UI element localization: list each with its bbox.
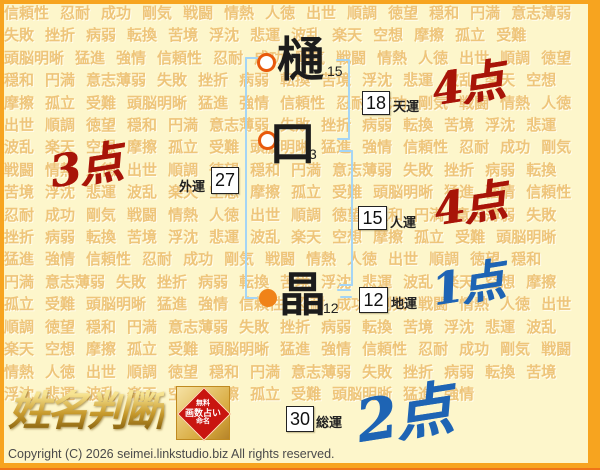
frame-border-bottom bbox=[0, 463, 600, 470]
person-score-stamp: 4点 bbox=[431, 179, 508, 234]
site-logo[interactable]: 姓名判断 bbox=[8, 390, 164, 432]
bracket-outer-cap-top bbox=[245, 57, 258, 59]
heaven-fortune-value: 18 bbox=[362, 91, 390, 115]
person-fortune-label: 人運 bbox=[390, 212, 416, 231]
name-char-2-strokes: 3 bbox=[309, 146, 317, 162]
total-fortune-label: 総運 bbox=[316, 412, 342, 431]
frame-border-right bbox=[588, 0, 600, 470]
bracket-outer-vertical bbox=[245, 57, 247, 299]
heaven-score-stamp: 4点 bbox=[429, 59, 506, 114]
seal-line-1: 無料 bbox=[196, 400, 210, 408]
bracket-heaven-vertical bbox=[348, 59, 350, 140]
earth-fortune-label: 地運 bbox=[391, 293, 417, 312]
total-fortune-value: 30 bbox=[286, 406, 314, 432]
seal-line-3: 命名 bbox=[196, 418, 210, 426]
total-score-stamp: 2点 bbox=[352, 379, 454, 451]
name-char-1: 樋 bbox=[277, 36, 324, 83]
bracket-heaven-cap-bottom bbox=[337, 138, 350, 140]
outer-fortune-label: 外運 bbox=[179, 176, 205, 195]
name-char-3-strokes: 12 bbox=[323, 300, 339, 316]
bracket-earth-dash-top bbox=[337, 289, 351, 291]
name-char-1-strokes: 15 bbox=[327, 63, 343, 79]
person-fortune-value: 15 bbox=[358, 206, 387, 230]
heaven-fortune-label: 天運 bbox=[393, 96, 419, 115]
bracket-heaven-cap-top bbox=[336, 59, 350, 61]
seal-line-2: 画数占い bbox=[185, 408, 221, 418]
outer-fortune-value: 27 bbox=[211, 167, 239, 194]
seimei-handan-result-page: 信頼性忍耐成功剛気戦闘情熱人徳出世順調徳望穏和円満意志薄弱失敗挫折病弱転換苦境浮… bbox=[0, 0, 600, 470]
earth-score-stamp: 1点 bbox=[429, 259, 506, 314]
name-char-3: 晶 bbox=[279, 271, 326, 318]
bracket-earth-dash-bottom bbox=[340, 296, 352, 298]
earth-fortune-value: 12 bbox=[359, 287, 388, 313]
frame-border-left bbox=[0, 0, 4, 470]
copyright-text: Copyright (C) 2026 seimei.linkstudio.biz… bbox=[8, 447, 335, 461]
frame-border-top bbox=[0, 0, 600, 4]
surname-marker-icon bbox=[257, 53, 276, 72]
free-naming-seal-banner[interactable]: 無料 画数占い 命名 bbox=[176, 386, 230, 440]
bracket-outer-cap-bottom bbox=[245, 297, 258, 299]
bracket-person-cap-top bbox=[339, 150, 353, 152]
outer-score-stamp: 3点 bbox=[47, 141, 124, 196]
given-name-marker-icon bbox=[259, 289, 277, 307]
bracket-person-vertical bbox=[351, 150, 353, 286]
bracket-person-cap-bottom bbox=[339, 284, 353, 286]
